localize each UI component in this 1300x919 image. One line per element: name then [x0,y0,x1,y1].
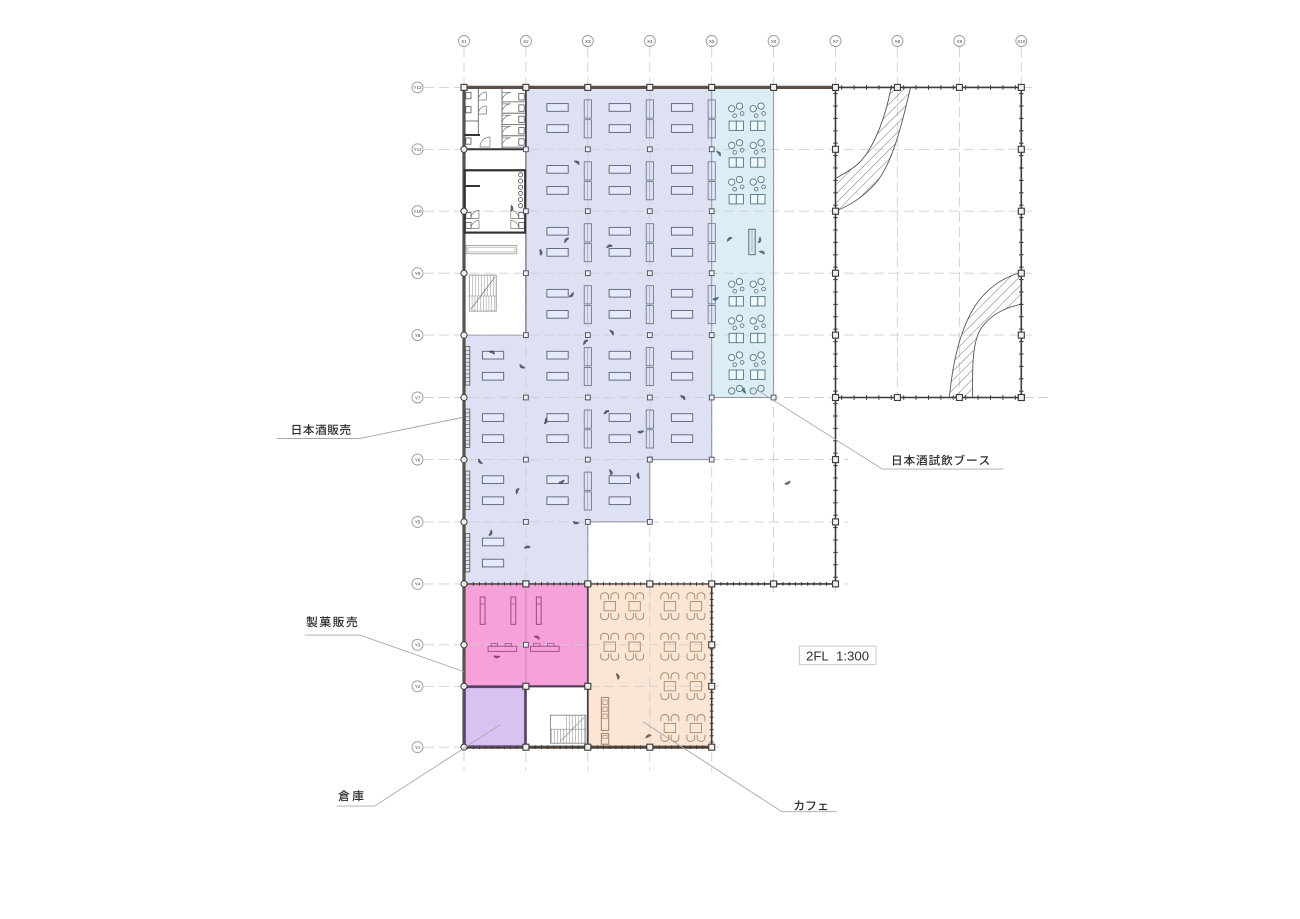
svg-text:X8: X8 [895,39,901,44]
svg-text:Y10: Y10 [413,209,422,214]
svg-text:Y1: Y1 [415,745,421,750]
svg-text:Y5: Y5 [415,520,421,525]
svg-text:X7: X7 [833,39,839,44]
svg-text:Y7: Y7 [415,395,421,400]
svg-text:Y9: Y9 [415,271,421,276]
svg-text:X3: X3 [585,39,591,44]
svg-text:X2: X2 [523,39,529,44]
svg-text:X6: X6 [771,39,777,44]
svg-text:Y6: Y6 [415,457,421,462]
svg-text:X5: X5 [709,39,715,44]
svg-text:Y11: Y11 [414,147,422,152]
svg-text:2FL 1:300: 2FL 1:300 [806,648,869,663]
svg-text:X9: X9 [957,39,963,44]
svg-text:Y4: Y4 [415,582,421,587]
svg-text:Y12: Y12 [413,85,422,90]
svg-text:X1: X1 [461,39,467,44]
svg-text:Y3: Y3 [415,643,421,648]
svg-text:Y8: Y8 [415,333,421,338]
svg-text:X4: X4 [647,39,653,44]
svg-text:Y2: Y2 [415,684,421,689]
svg-text:X10: X10 [1017,39,1026,44]
